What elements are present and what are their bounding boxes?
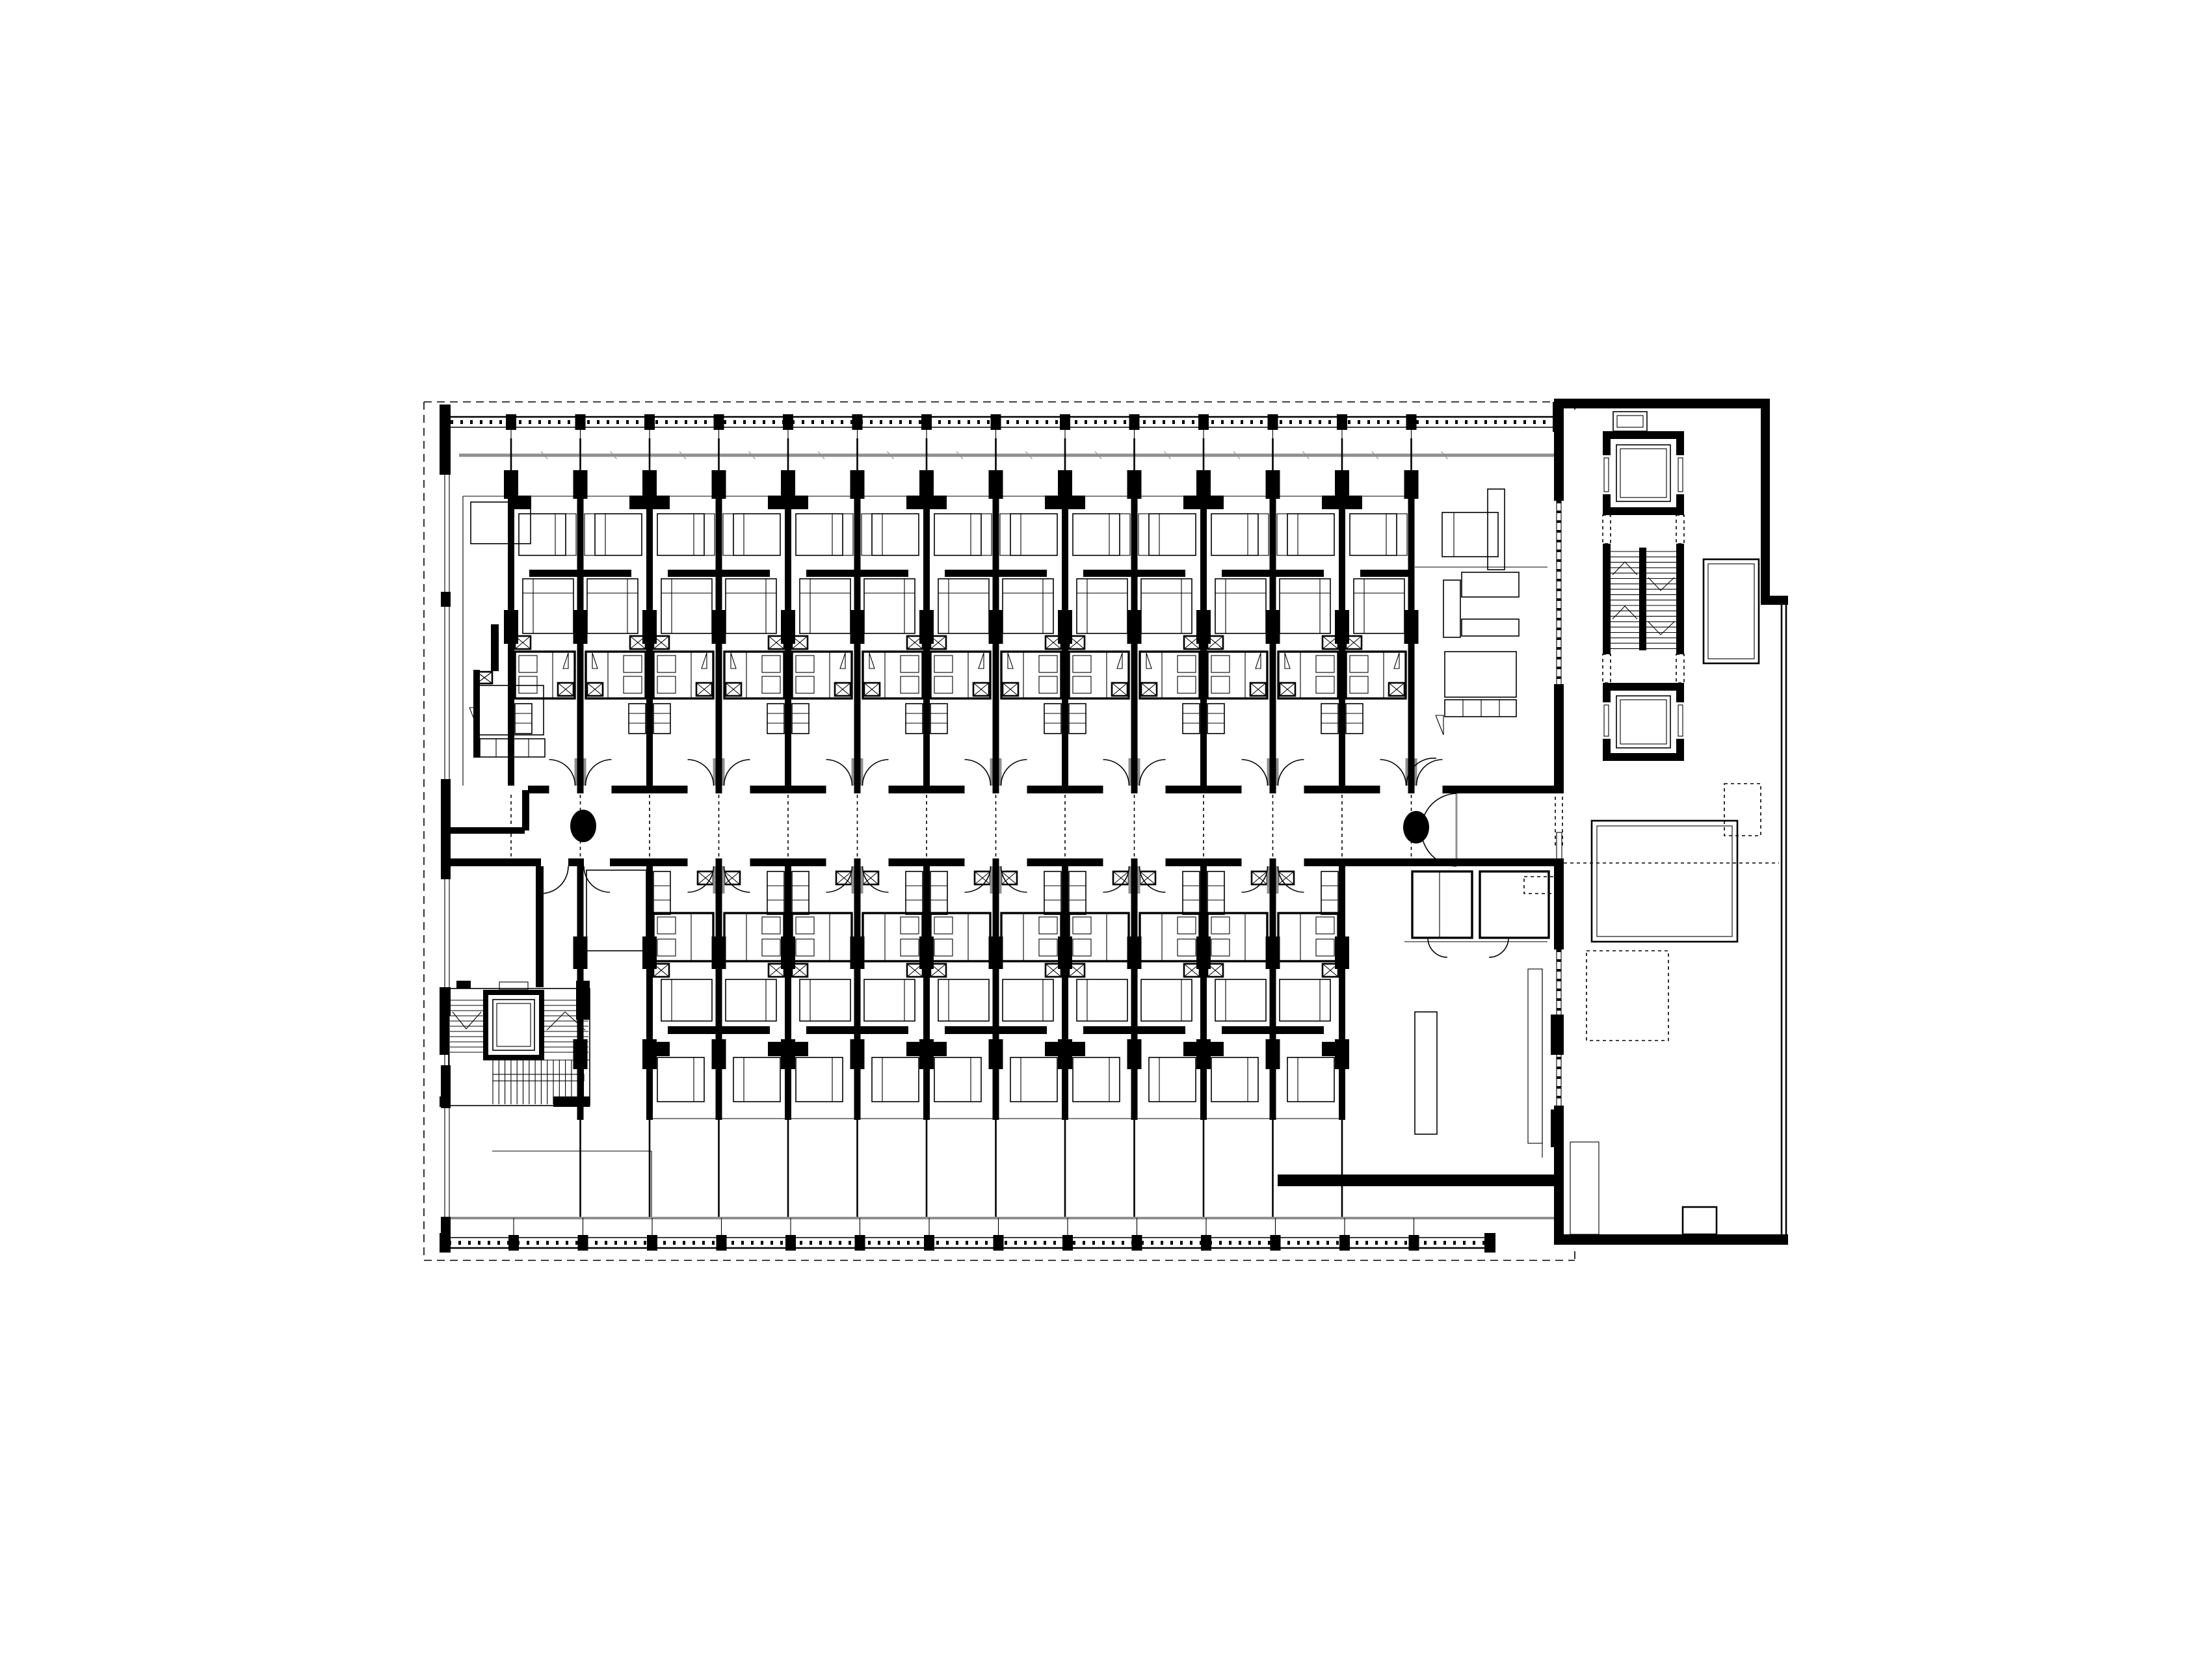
floor-plan-svg bbox=[0, 0, 2212, 1659]
annex-elevator-2 bbox=[1603, 683, 1684, 761]
left-elevator bbox=[483, 982, 544, 1060]
floor-plan-page bbox=[0, 0, 2212, 1659]
column-dot bbox=[1403, 811, 1429, 843]
annex-elevator-1 bbox=[1603, 431, 1684, 515]
background bbox=[0, 0, 2212, 1659]
column-dot bbox=[570, 810, 596, 842]
